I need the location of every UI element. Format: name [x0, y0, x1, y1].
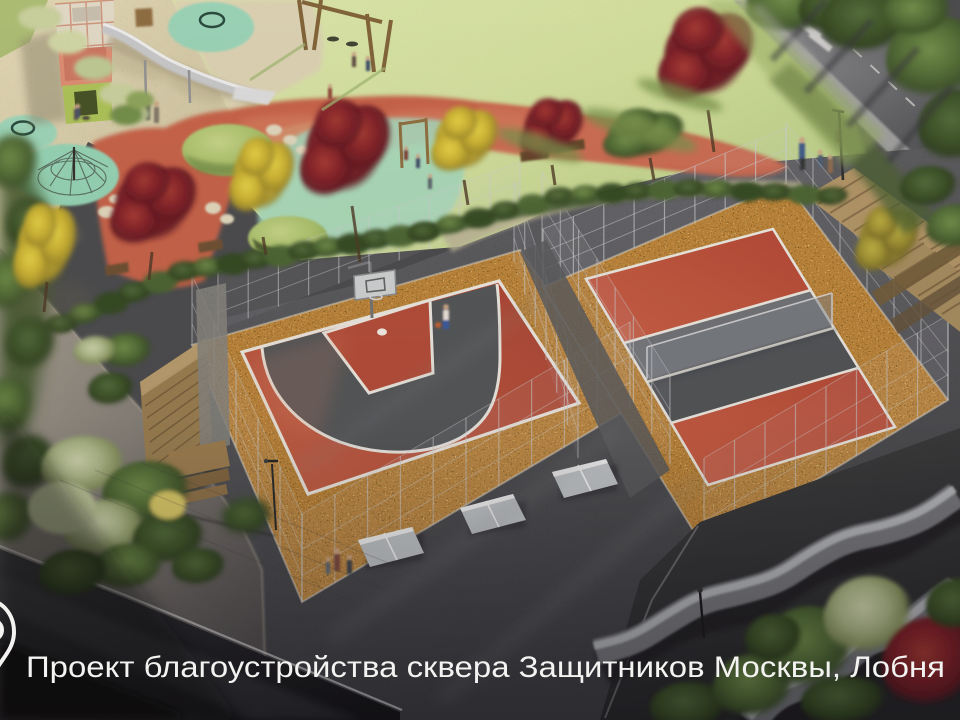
- svg-text:Проект благоустройства сквера: Проект благоустройства сквера Защитников…: [26, 651, 945, 684]
